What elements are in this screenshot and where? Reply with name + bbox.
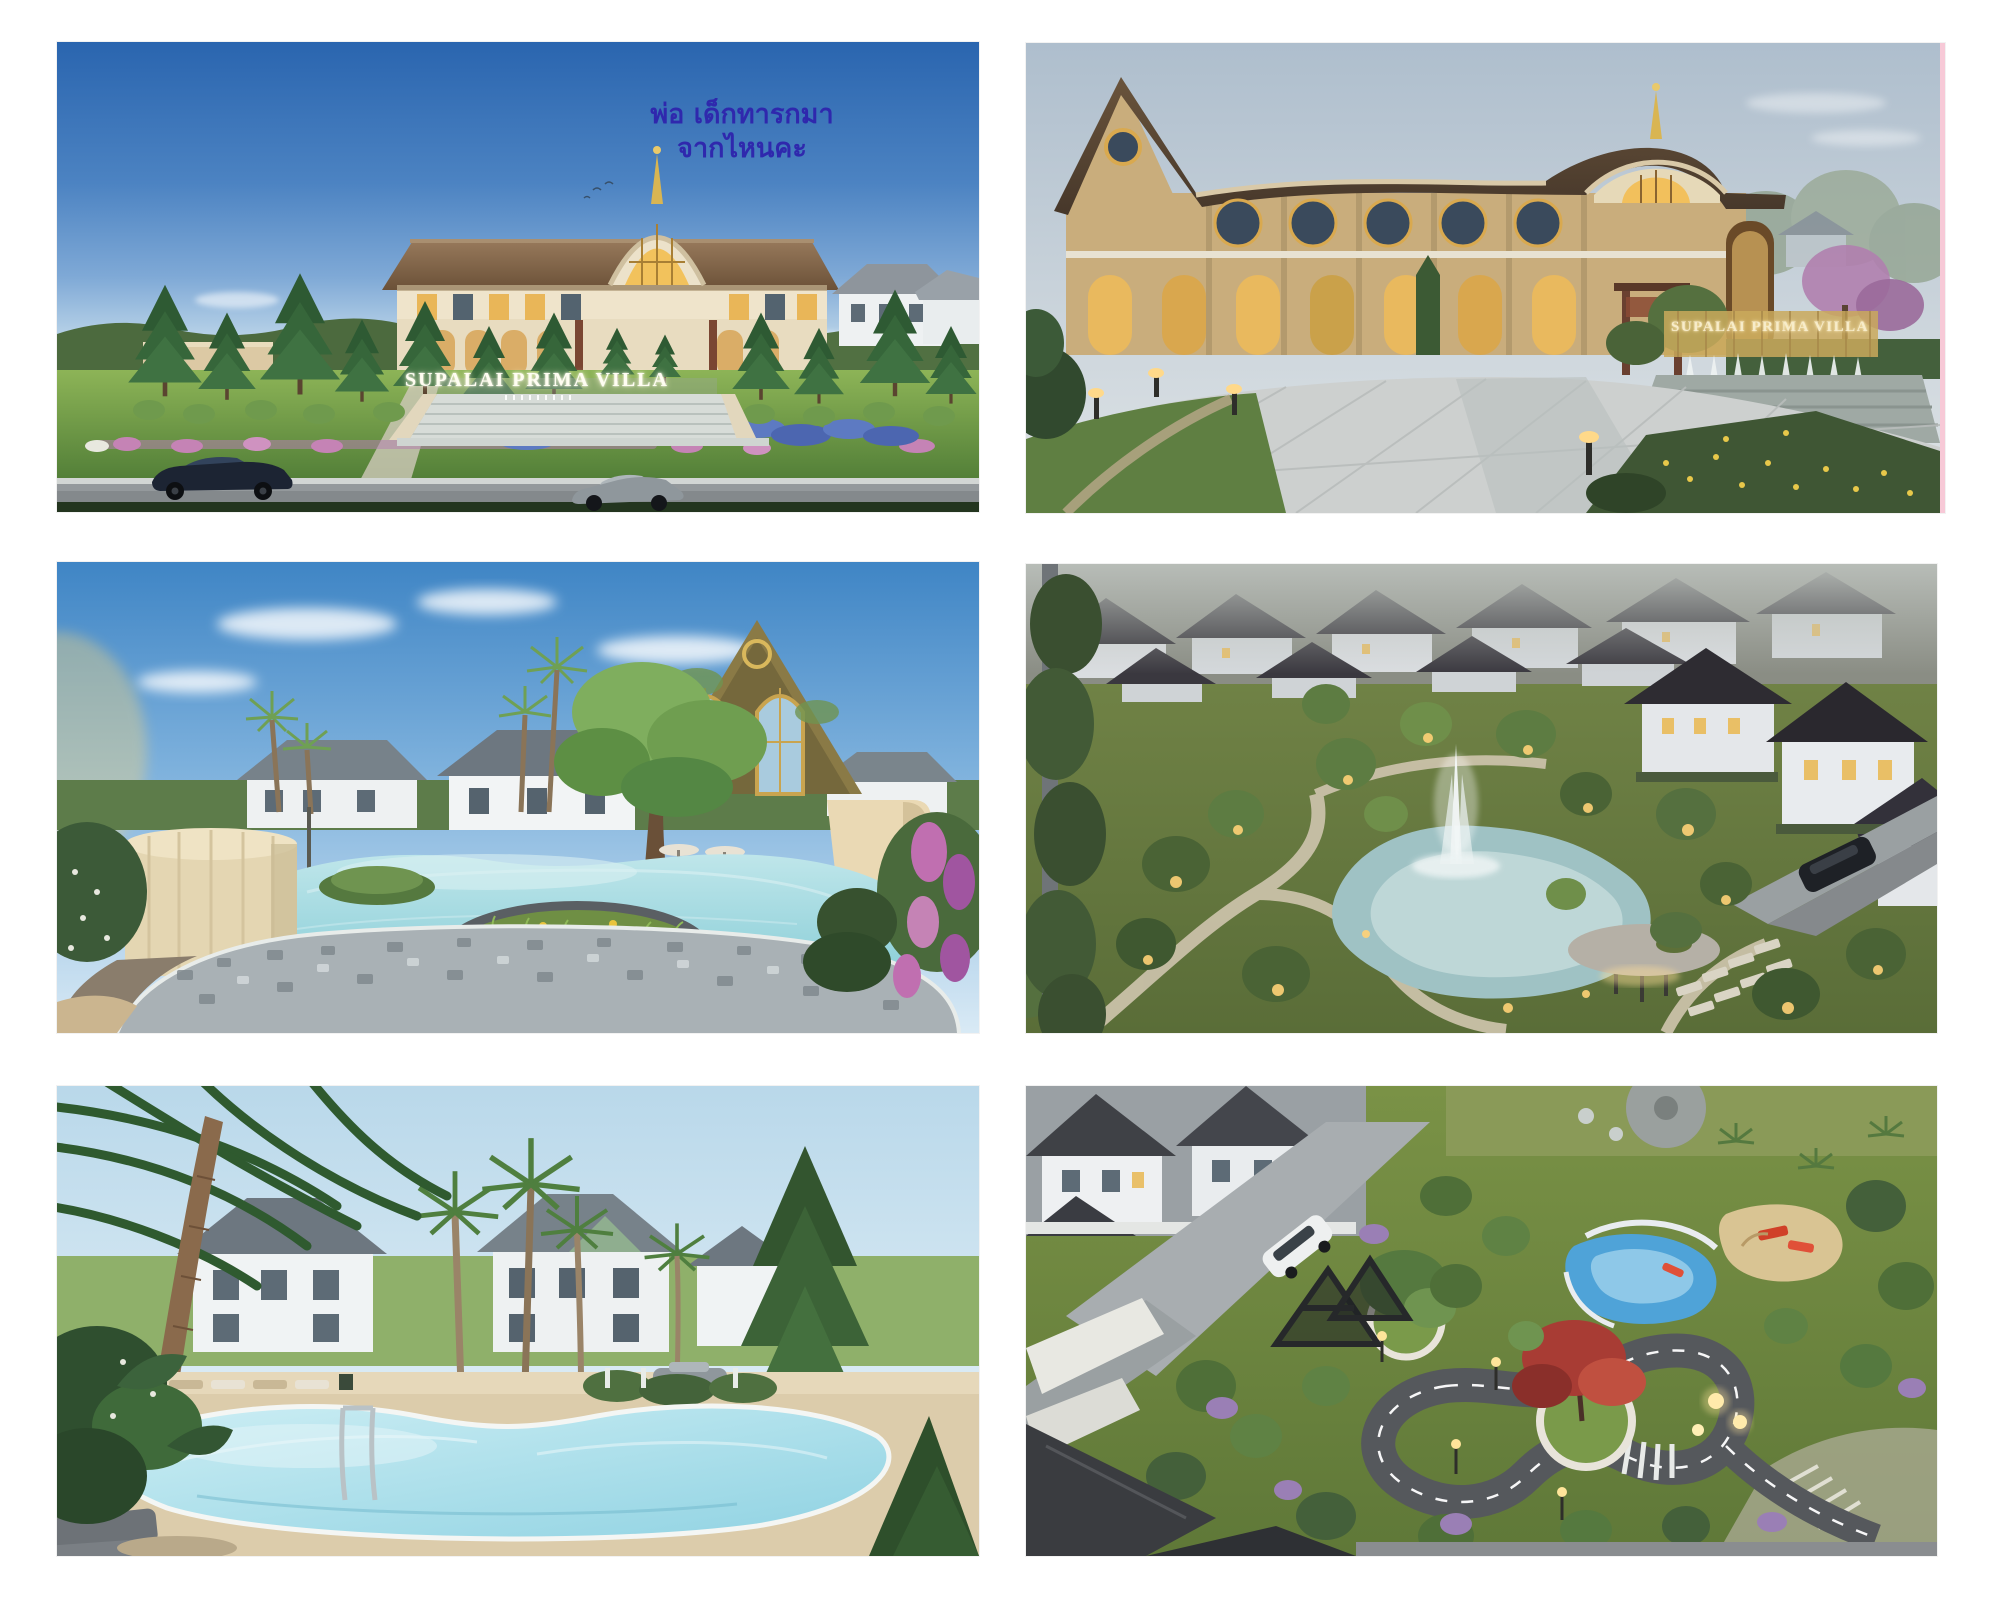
cypress xyxy=(1416,255,1440,355)
top-right-area xyxy=(1446,1086,1937,1168)
photo-clubhouse-dusk[interactable]: SUPALAI PRIMA VILLA xyxy=(1026,43,1945,513)
sign-subtext-marks xyxy=(505,395,571,400)
project-sign-text: SUPALAI PRIMA VILLA xyxy=(405,369,661,392)
photo-entrance-day[interactable]: SUPALAI PRIMA VILLA พ่อ เด็กทารกมาจากไหน… xyxy=(57,42,979,512)
photo-playground-aerial[interactable] xyxy=(1026,1086,1937,1556)
lagoon-pool-illustration xyxy=(57,562,979,1033)
playground-aerial-illustration xyxy=(1026,1086,1937,1556)
foreground-grass xyxy=(57,502,979,512)
collage-page: SUPALAI PRIMA VILLA พ่อ เด็กทารกมาจากไหน… xyxy=(0,0,2000,1600)
dusk-haze xyxy=(1026,564,1937,674)
photo-palm-pool[interactable] xyxy=(57,1086,979,1556)
photo-lake-park-aerial[interactable] xyxy=(1026,564,1937,1033)
annotation-line2: จากไหนคะ xyxy=(677,133,807,164)
handwritten-annotation: พ่อ เด็กทารกมาจากไหนคะ xyxy=(617,98,867,166)
boundary-wall xyxy=(1356,1542,1937,1556)
palm-pool-illustration xyxy=(57,1086,979,1556)
pool xyxy=(108,1406,889,1539)
annotation-line1: พ่อ เด็กทารกมา xyxy=(650,99,833,130)
project-sign-text: SUPALAI PRIMA VILLA xyxy=(1671,319,1851,336)
clubhouse-dusk-illustration xyxy=(1026,43,1940,513)
lake-park-aerial-illustration xyxy=(1026,564,1937,1033)
photo-lagoon-pool[interactable] xyxy=(57,562,979,1033)
